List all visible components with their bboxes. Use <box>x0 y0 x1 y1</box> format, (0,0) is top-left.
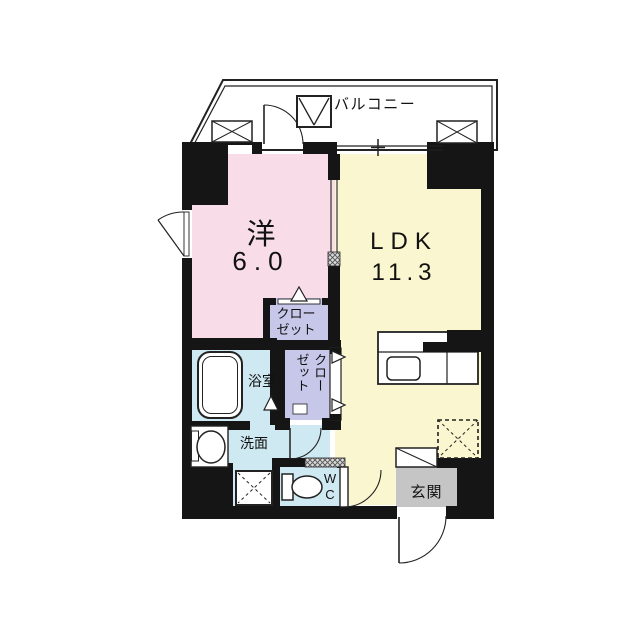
pillar-top-left <box>182 142 228 205</box>
wall-washroom-top-a <box>275 418 290 430</box>
wall-bathroom-top <box>182 338 277 350</box>
ac-unit-box <box>297 96 331 127</box>
wall-room-divider-top <box>328 154 340 180</box>
floor-plan: バルコニー 洋 6.0 LDK 11.3 クロー ゼット クロー ゼット 浴室 … <box>0 0 640 640</box>
kitchen-wall-b <box>423 342 481 352</box>
wall-bottom-left-block <box>182 463 233 519</box>
wall-entrance-right-block <box>457 466 494 519</box>
closet-upper-wall-b <box>322 298 328 305</box>
washing-machine-area <box>236 471 272 505</box>
wc-label: W C <box>321 471 339 502</box>
toilet-bowl-icon <box>292 476 322 498</box>
closet-lower-door-cap-bottom <box>330 414 341 420</box>
room-slider-hatch <box>328 252 340 266</box>
wall-top-2 <box>303 142 337 154</box>
pipe-space-hatch <box>305 458 345 467</box>
bathroom-label: 浴室 <box>234 371 290 391</box>
closet-lower-label: クロー ゼット <box>293 353 328 421</box>
wall-vent-notch <box>228 145 252 154</box>
ldk-size: 11.3 <box>348 259 460 287</box>
left-window-sash <box>184 212 189 256</box>
left-window-leaf <box>158 220 184 256</box>
closet-upper-wall-right <box>328 300 340 345</box>
western-room-size: 6.0 <box>216 246 306 277</box>
ldk-label: LDK <box>352 228 456 256</box>
left-window-arc <box>158 212 184 220</box>
kitchen-wall-a <box>447 330 481 342</box>
wall-under-fridge <box>437 458 494 468</box>
entrance-label: 玄関 <box>398 481 455 502</box>
closet-upper-label: クロー ゼット <box>266 306 326 339</box>
balcony-label: バルコニー <box>334 93 416 114</box>
pillar-top-right <box>427 142 494 189</box>
washroom-label: 洗面 <box>226 433 282 453</box>
wall-room-divider-mid <box>328 266 340 300</box>
wc-door-leaf <box>340 467 348 507</box>
wall-wc-left <box>272 458 280 507</box>
entrance-door-arc <box>399 516 446 563</box>
vanity-basin-icon <box>197 431 225 463</box>
